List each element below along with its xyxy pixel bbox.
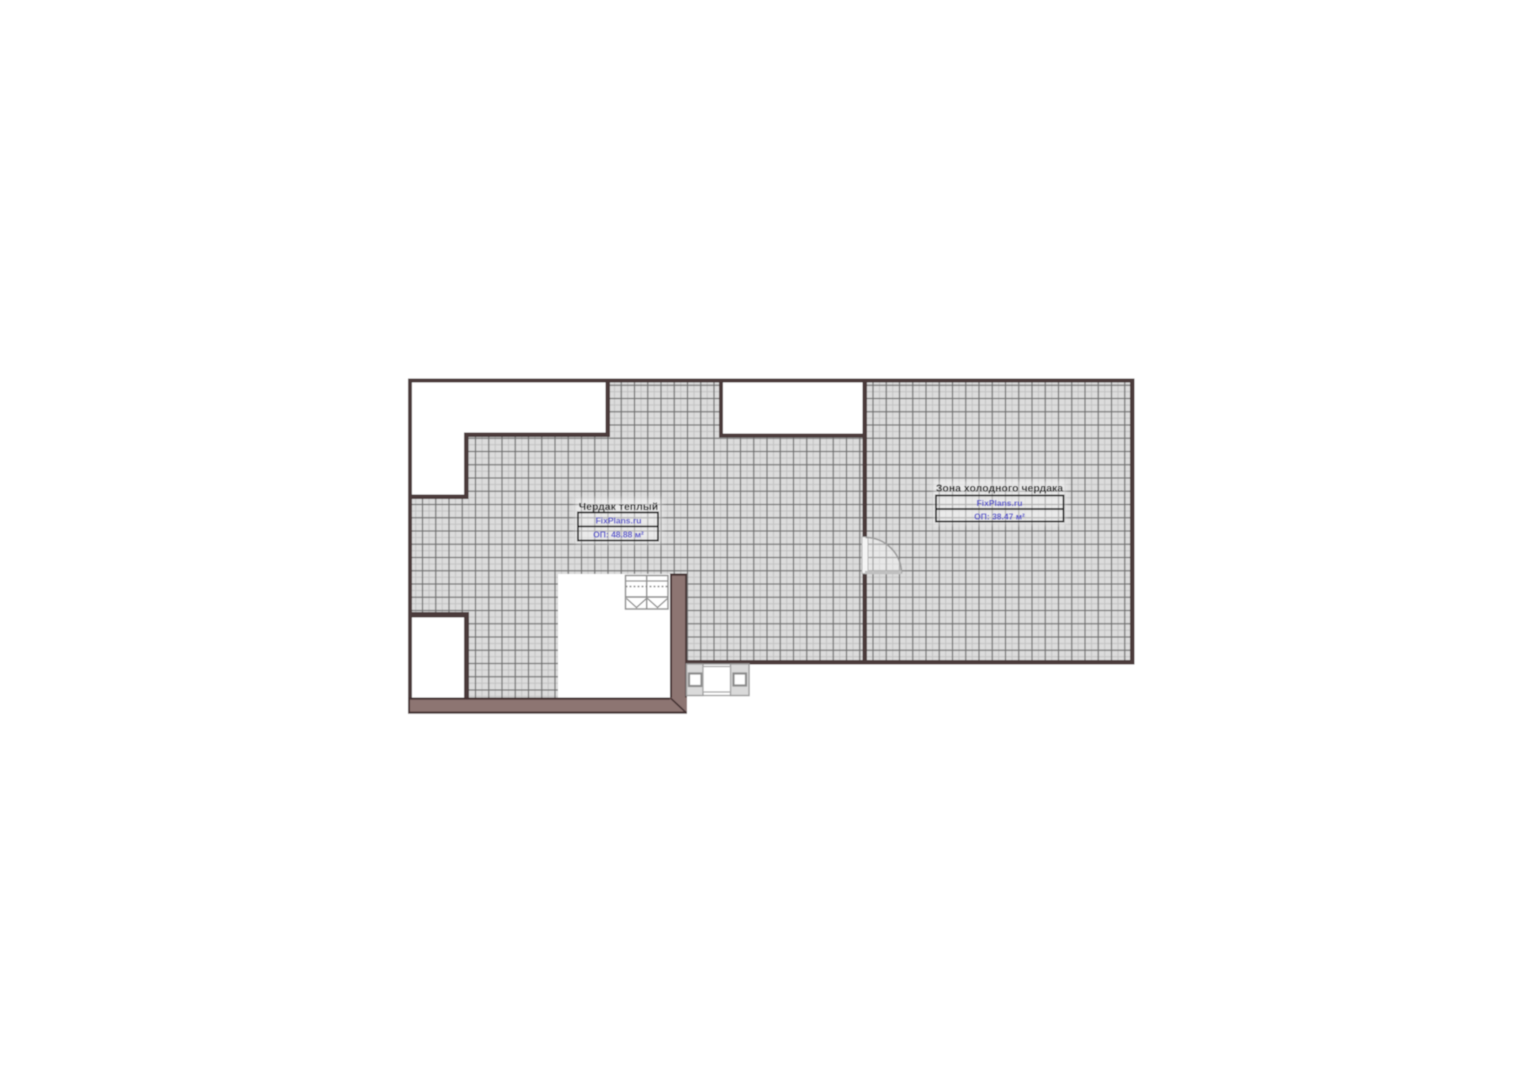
svg-text:FixPlans.ru: FixPlans.ru — [977, 498, 1023, 508]
svg-text:Зона холодного чердака: Зона холодного чердака — [936, 483, 1063, 495]
svg-text:ОП: 38.47 м²: ОП: 38.47 м² — [974, 512, 1025, 522]
svg-text:Чердак теплый: Чердак теплый — [579, 501, 658, 513]
svg-text:ОП: 48.88 м²: ОП: 48.88 м² — [593, 530, 644, 540]
svg-text:FixPlans.ru: FixPlans.ru — [596, 516, 642, 526]
